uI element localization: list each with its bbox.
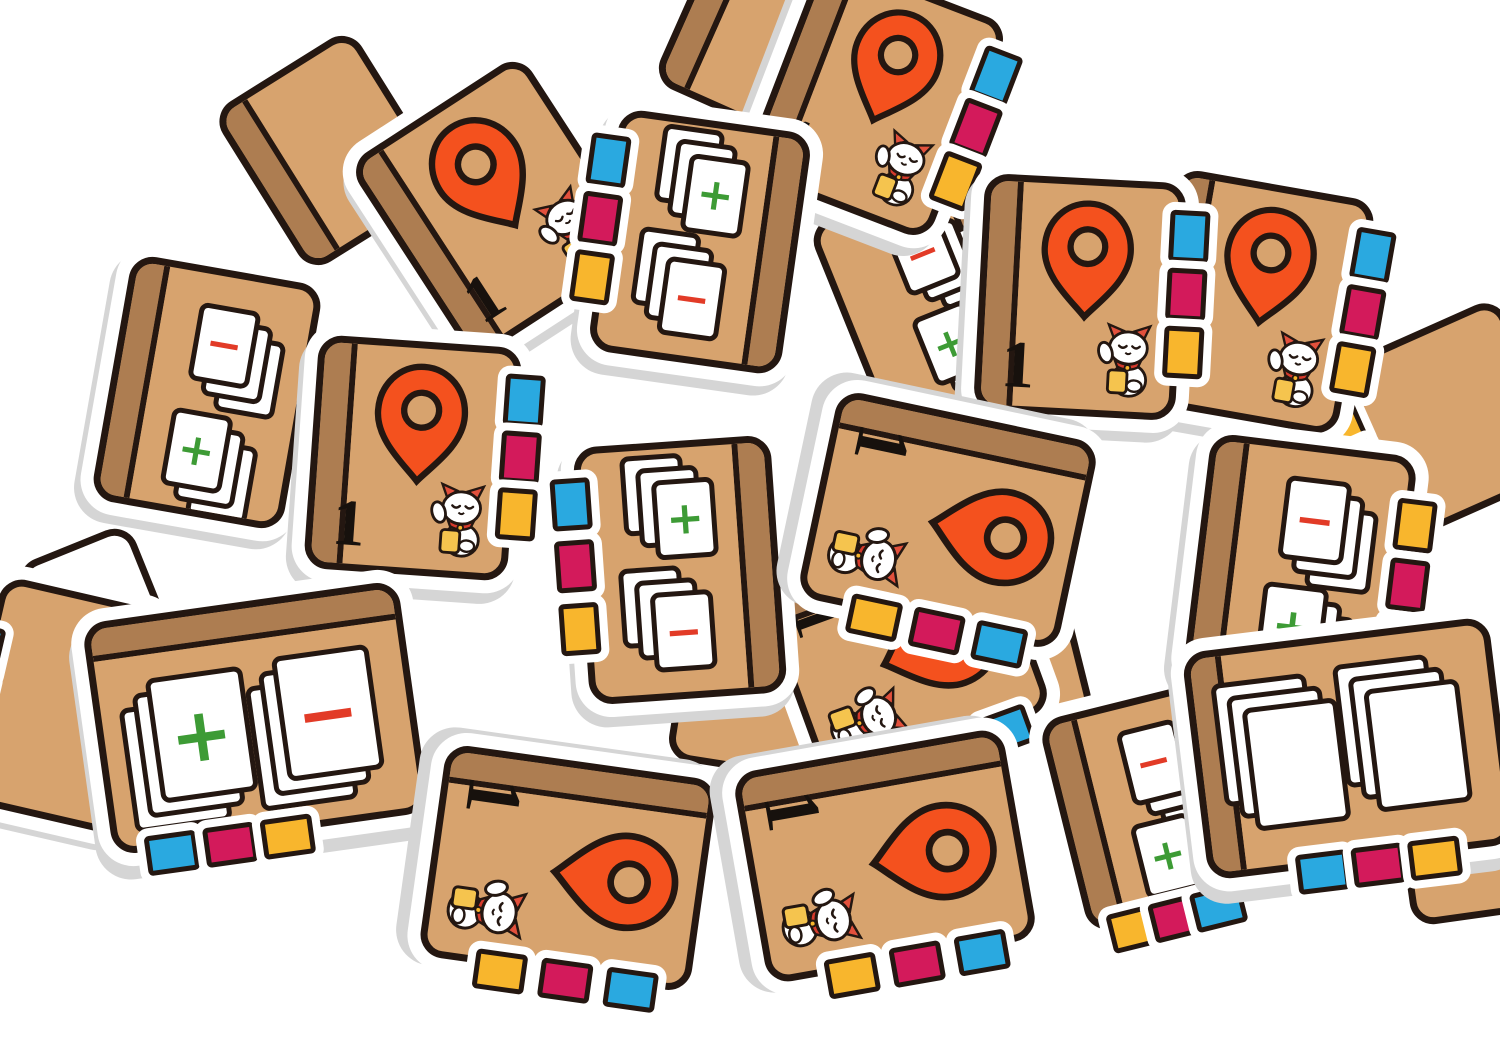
- index-tab-blue: [549, 477, 593, 532]
- cards-tile-bottom-right: [1166, 601, 1500, 895]
- index-tab-yellow: [471, 948, 528, 995]
- notebook-spine: [731, 442, 780, 688]
- playing-card: −: [270, 644, 385, 782]
- tile-face: 1: [973, 173, 1187, 421]
- index-tab-magenta: [554, 539, 598, 594]
- lucky-cat-icon: [1091, 320, 1163, 407]
- die-cut-border: 1: [716, 712, 1053, 1000]
- plus-symbol: +: [694, 171, 737, 220]
- index-tab-magenta: [201, 821, 258, 868]
- pin-tile-bottom-left-sideways: 1: [403, 728, 733, 1007]
- map-pin-icon: [1205, 197, 1331, 341]
- index-tab-yellow: [259, 813, 316, 860]
- index-tab-yellow: [569, 249, 616, 306]
- plus-symbol: +: [165, 694, 238, 777]
- lucky-cat-icon: [423, 479, 497, 567]
- index-tab-blue: [585, 131, 632, 188]
- map-pin-icon: [1031, 196, 1143, 329]
- index-tab-yellow: [1162, 325, 1205, 379]
- product-photo-canvas: −+1−+−+11+−111+−1−++−11: [0, 0, 1500, 1038]
- index-tab-yellow: [495, 487, 539, 542]
- index-tab-magenta: [1350, 842, 1406, 888]
- minus-symbol: −: [291, 671, 364, 754]
- index-tab-magenta: [537, 957, 594, 1004]
- notebook-spine: [660, 0, 742, 90]
- minus-symbol: −: [670, 275, 713, 324]
- plus-symbol: +: [1145, 830, 1190, 880]
- lucky-cat-icon: [853, 123, 945, 224]
- playing-card: [1363, 677, 1473, 812]
- die-cut-border: +−: [558, 421, 801, 720]
- index-tab-blue: [1168, 209, 1211, 263]
- tile-face: 1: [303, 334, 523, 582]
- pin-tile-bottom-center-sideways: 1: [716, 712, 1053, 1000]
- tile-number: 1: [330, 490, 368, 558]
- playing-card: [1240, 696, 1350, 831]
- map-pin-icon: [912, 466, 1067, 603]
- playing-card: +: [144, 666, 259, 804]
- die-cut-border: +−: [572, 93, 827, 391]
- index-tab-blue: [602, 966, 659, 1013]
- lucky-cat-icon: [1255, 327, 1336, 421]
- minus-symbol: −: [202, 320, 246, 370]
- lucky-cat-icon: [768, 880, 867, 966]
- playing-card: −: [650, 589, 718, 673]
- index-tab-yellow: [558, 601, 602, 656]
- pin-tile-center-left: 1: [289, 320, 537, 595]
- pin-tile-top-right-inner: 1: [959, 159, 1201, 435]
- die-cut-border: +−: [66, 565, 444, 870]
- notebook-spine: [1045, 719, 1126, 926]
- cards-tile-top-middle: +−: [572, 93, 827, 391]
- index-tab-blue: [1294, 849, 1350, 895]
- tile-face: +−: [81, 580, 429, 856]
- notebook-spine: [98, 261, 170, 498]
- tile-face: +−: [572, 434, 788, 705]
- minus-symbol: −: [663, 607, 704, 655]
- index-tab-magenta: [888, 940, 946, 988]
- index-tab-yellow: [1392, 497, 1438, 553]
- plus-symbol: +: [174, 425, 218, 475]
- index-tab-blue: [503, 373, 547, 428]
- index-tab-magenta: [499, 430, 543, 485]
- index-tab-magenta: [577, 190, 624, 247]
- cards-tile-bottom-left: +−: [66, 565, 444, 870]
- minus-symbol: −: [1292, 494, 1338, 547]
- tile-number: 1: [999, 331, 1036, 400]
- index-tab-magenta: [1165, 267, 1208, 321]
- index-tab-blue: [953, 928, 1011, 976]
- die-cut-border: 1: [959, 159, 1201, 435]
- die-cut-border: [1166, 601, 1500, 895]
- minus-symbol: −: [1130, 737, 1175, 787]
- playing-card: +: [679, 152, 751, 239]
- playing-card: −: [655, 256, 727, 343]
- tile-face: −+: [90, 253, 324, 532]
- plus-symbol: +: [665, 495, 706, 543]
- tile-face: 1: [796, 389, 1100, 652]
- die-cut-border: 1: [403, 728, 733, 1007]
- map-pin-icon: [363, 358, 478, 494]
- lucky-cat-icon: [814, 513, 914, 601]
- index-tab-blue: [143, 830, 200, 877]
- map-pin-icon: [855, 786, 1009, 920]
- tile-face: 1: [417, 743, 718, 993]
- cards-tile-center: +−: [558, 421, 801, 720]
- index-tab-yellow: [823, 951, 881, 999]
- lucky-cat-icon: [434, 869, 531, 953]
- notebook-spine: [741, 136, 805, 368]
- die-cut-border: 1: [289, 320, 537, 595]
- notebook-spine: [220, 99, 340, 264]
- playing-card: −: [1277, 475, 1353, 566]
- index-tab-blue: [1349, 226, 1397, 284]
- index-tab-magenta: [1385, 557, 1431, 613]
- map-pin-icon: [538, 815, 688, 945]
- index-tab-yellow: [1407, 835, 1463, 881]
- playing-card: +: [651, 476, 719, 560]
